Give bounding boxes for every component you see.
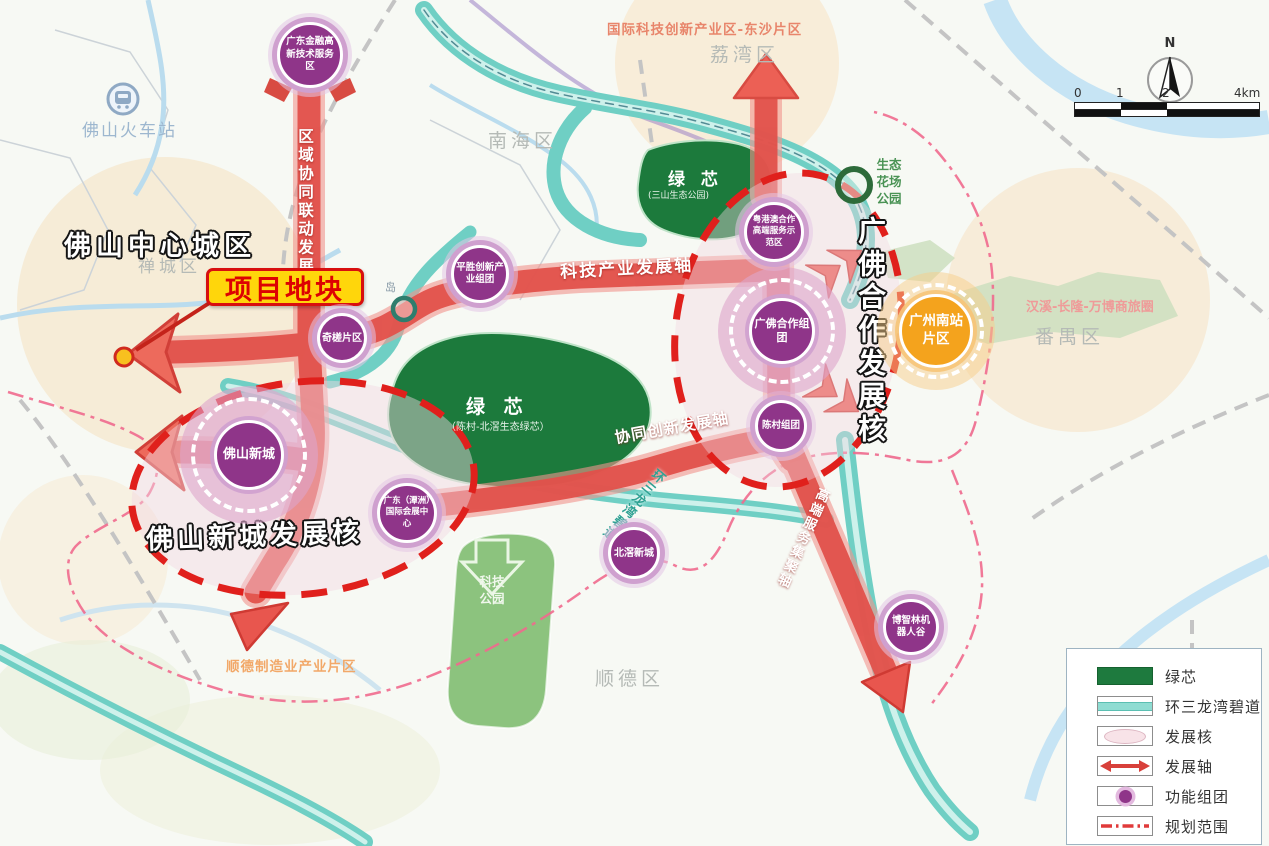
double-arrow-icon: [1098, 757, 1152, 775]
green-core-sanshan-title: 绿 芯: [668, 165, 723, 190]
eco-flower-park-ring-icon: [838, 169, 870, 201]
node-tanzhou-expo: 广东（潭洲）国际会展中心: [377, 483, 437, 543]
island-label: 岛: [385, 279, 396, 295]
legend-item-dev-core: 发展核: [1097, 721, 1261, 751]
node-gz-south-station: 广州南站片区: [877, 272, 995, 390]
compass-north-label: N: [1142, 36, 1198, 51]
node-gba-highend-service: 粤港澳合作高端服务示范区: [744, 202, 804, 262]
legend-item-dev-axis: 发展轴: [1097, 751, 1261, 781]
tech-park-label: 科技公园: [477, 574, 507, 608]
legend: 绿芯 环三龙湾碧道 发展核 发展轴 功能组团: [1066, 648, 1262, 845]
greenway-swatch: [1097, 696, 1153, 716]
district-label-shunde: 顺德区: [595, 664, 664, 691]
scale-bar: 0 1 2 4km: [1074, 86, 1260, 120]
node-pingsheng: 平胜创新产业组团: [451, 245, 509, 303]
project-site-callout: 项目地块: [206, 268, 364, 306]
boundary-swatch: [1097, 816, 1153, 836]
green-core-sanshan-sub: (三山生态公园): [648, 188, 709, 201]
green-core-chencun-sub: （陈村-北滘生态绿芯）: [446, 418, 550, 433]
train-station-icon: [108, 84, 138, 114]
scale-tick-0: 0: [1074, 86, 1082, 100]
district-label-nanhai: 南海区: [488, 126, 557, 153]
node-gd-finance-hitech: 广东金融高新技术服务区: [277, 22, 343, 88]
scale-tick-1: 1: [1116, 86, 1124, 100]
district-label-liwan: 荔湾区: [710, 40, 779, 67]
scale-tick-2: 2: [1162, 86, 1170, 100]
cluster-swatch: [1097, 786, 1153, 806]
green-core-chencun-title: 绿 芯: [466, 392, 529, 419]
legend-item-green-core: 绿芯: [1097, 661, 1261, 691]
dash-dot-line-icon: [1098, 817, 1152, 835]
shunde-manufacturing-label: 顺德制造业产业片区: [226, 655, 357, 675]
node-guangfo-cluster: 广佛合作组团: [718, 267, 846, 395]
scale-tick-4km: 4km: [1234, 86, 1260, 100]
station-label: 佛山火车站: [82, 116, 177, 141]
planning-map: 佛山火车站 南海区 荔湾区 禅城区 番禺区 顺德区 国际科技创新产业区-东沙片区…: [0, 0, 1269, 846]
node-bozhilin-robot-valley: 博智林机器人谷: [883, 599, 939, 655]
foshan-center-city-label: 佛山中心城区: [64, 224, 256, 263]
dev-axis-swatch: [1097, 756, 1153, 776]
district-label-panyu: 番禺区: [1035, 322, 1104, 349]
island-park-ring-icon: [393, 298, 415, 320]
hanxi-changlong-label: 汉溪-长隆-万博商旅圈: [1026, 296, 1154, 315]
legend-item-boundary: 规划范围: [1097, 811, 1261, 841]
intl-innovation-zone-label: 国际科技创新产业区-东沙片区: [607, 18, 802, 38]
legend-item-greenway: 环三龙湾碧道: [1097, 691, 1261, 721]
node-chencun: 陈村组团: [755, 400, 807, 452]
legend-item-cluster: 功能组团: [1097, 781, 1261, 811]
node-beijiao-newtown: 北滘新城: [608, 527, 660, 579]
eco-flower-park-label: 生态花场公园: [874, 157, 904, 208]
dev-core-swatch: [1097, 726, 1153, 746]
green-core-swatch: [1097, 667, 1153, 685]
node-foshan-newtown: 佛山新城: [180, 386, 318, 524]
node-qicha: 奇槎片区: [317, 313, 367, 363]
scale-bar-graphic: [1074, 102, 1260, 117]
